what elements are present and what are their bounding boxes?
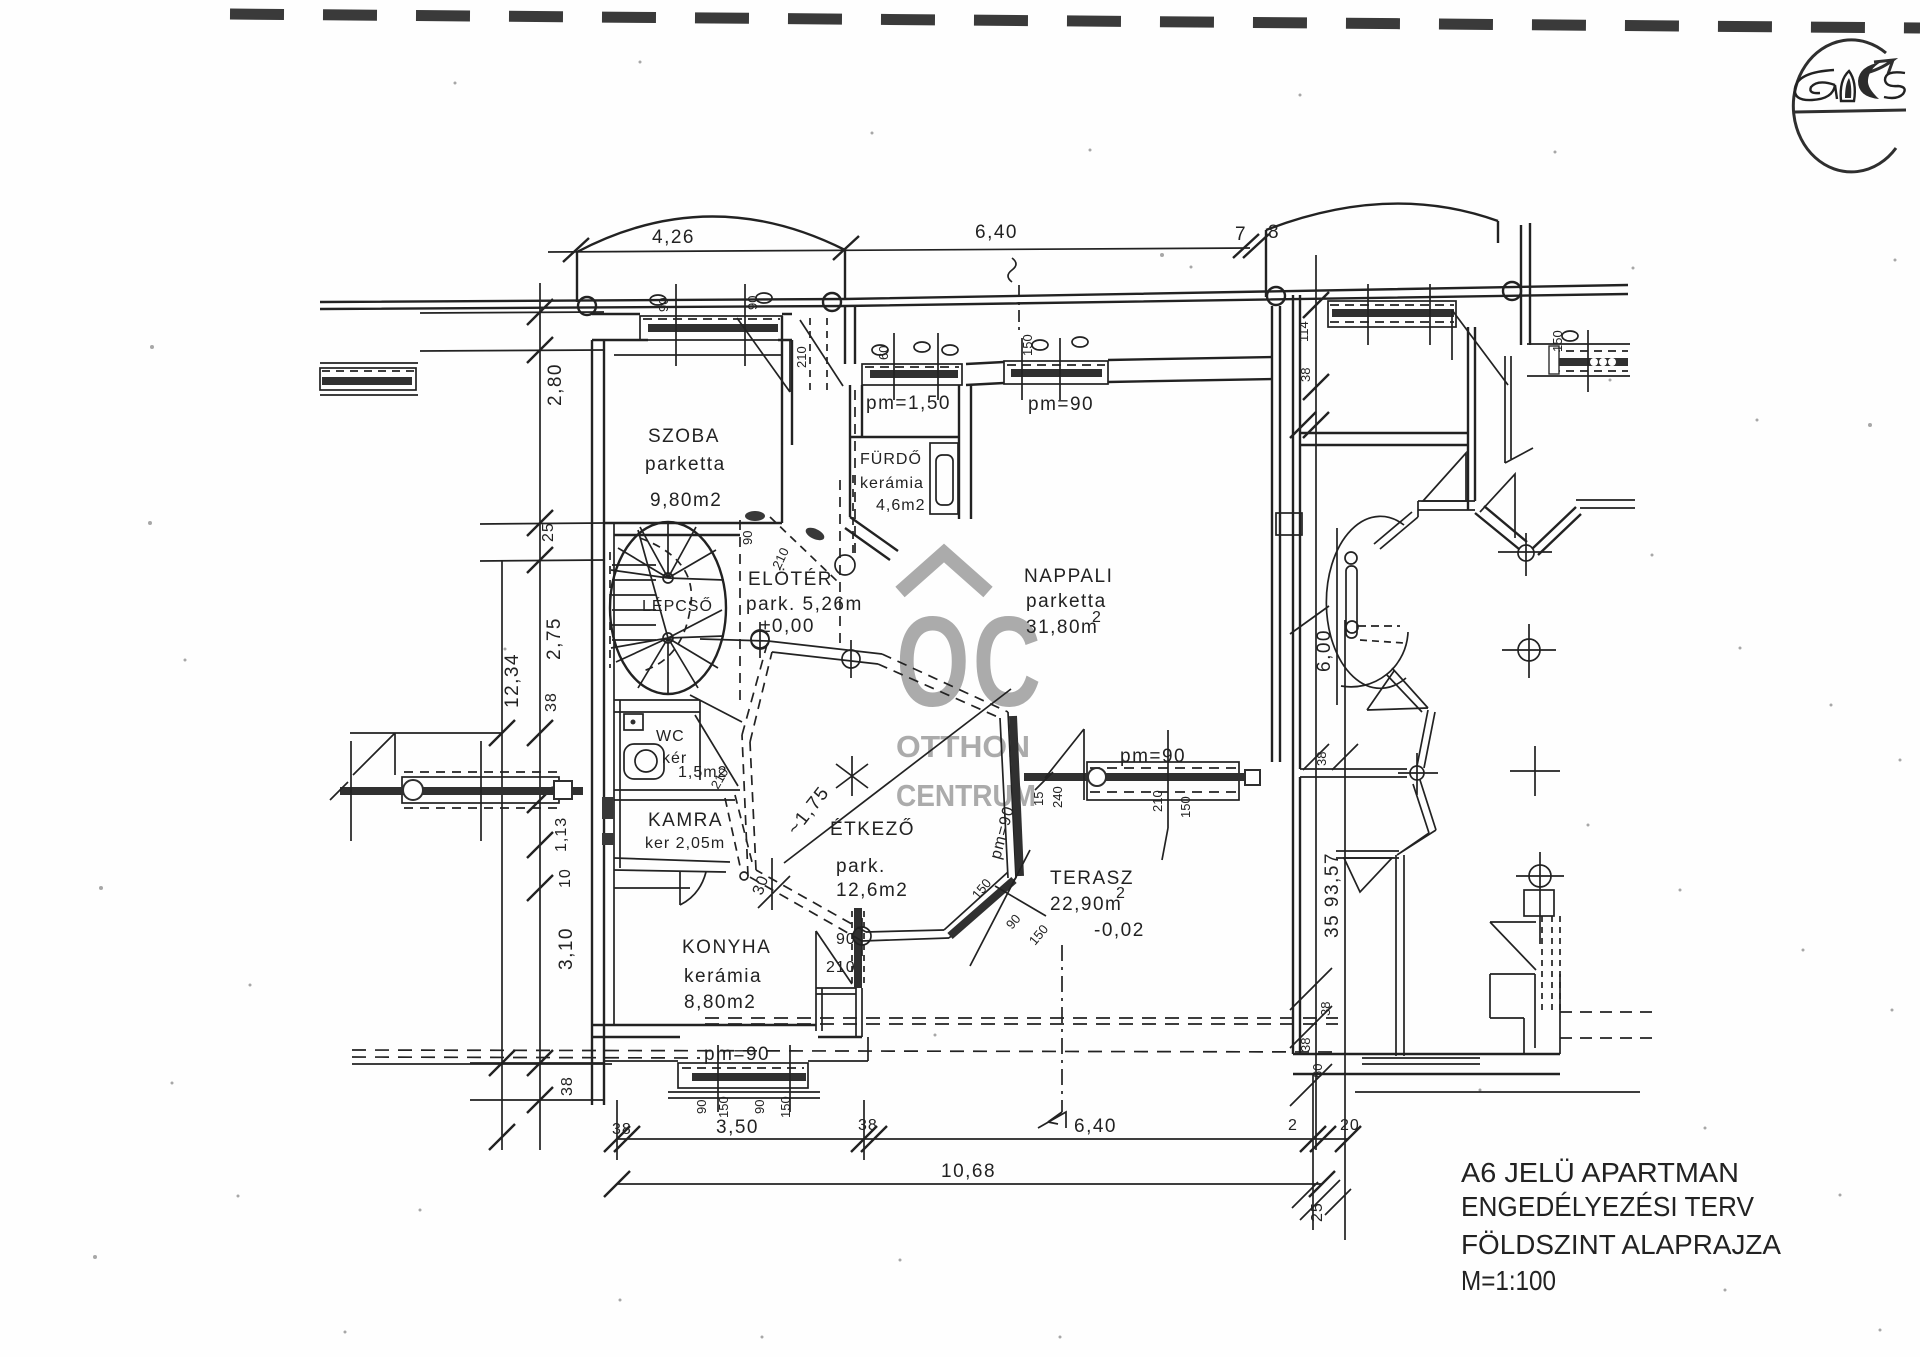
svg-text:A6 JELÜ APARTMAN: A6 JELÜ APARTMAN xyxy=(1461,1157,1739,1188)
svg-text:22,90m: 22,90m xyxy=(1050,894,1122,915)
svg-text:25: 25 xyxy=(540,522,557,542)
svg-text:150: 150 xyxy=(778,1096,793,1118)
svg-text:210: 210 xyxy=(1150,790,1165,812)
svg-text:ELÖTÉR: ELÖTÉR xyxy=(748,569,833,590)
svg-text:KAMRA: KAMRA xyxy=(648,810,723,831)
svg-text:park. 5,26m: park. 5,26m xyxy=(746,594,863,615)
svg-text:12,34: 12,34 xyxy=(502,653,523,708)
svg-text:60: 60 xyxy=(1310,1064,1325,1078)
svg-text:2: 2 xyxy=(1288,1117,1298,1134)
svg-text:15: 15 xyxy=(1031,792,1046,806)
svg-text:6,40: 6,40 xyxy=(975,222,1018,243)
svg-text:7: 7 xyxy=(1235,224,1247,245)
svg-text:240: 240 xyxy=(1050,786,1065,808)
svg-text:-0,02: -0,02 xyxy=(1094,920,1145,941)
svg-text:10,68: 10,68 xyxy=(941,1161,996,1182)
svg-text:210: 210 xyxy=(794,346,809,368)
svg-text:38: 38 xyxy=(612,1121,632,1138)
svg-text:OC: OC xyxy=(896,590,1044,733)
svg-text:90: 90 xyxy=(752,1100,767,1114)
svg-text:150: 150 xyxy=(1178,796,1193,818)
svg-text:NAPPALI: NAPPALI xyxy=(1024,566,1113,587)
svg-text:ker 2,05m: ker 2,05m xyxy=(645,835,725,852)
svg-text:25: 25 xyxy=(1309,1202,1326,1222)
svg-text:2: 2 xyxy=(1092,609,1102,626)
svg-text:38: 38 xyxy=(559,1076,576,1096)
svg-text:150: 150 xyxy=(716,1096,731,1118)
svg-text:38: 38 xyxy=(1298,368,1313,382)
svg-text:parketta: parketta xyxy=(645,454,726,475)
svg-text:pm=90: pm=90 xyxy=(1028,394,1094,415)
svg-text:FÜRDŐ: FÜRDŐ xyxy=(860,449,922,468)
svg-text:150: 150 xyxy=(1550,330,1565,352)
svg-text:90: 90 xyxy=(694,1100,709,1114)
svg-text:KONYHA: KONYHA xyxy=(682,937,771,958)
svg-text:3,50: 3,50 xyxy=(716,1117,759,1138)
svg-text:kerámia: kerámia xyxy=(860,475,924,492)
svg-text:38: 38 xyxy=(543,692,560,712)
svg-text:ÉTKEZŐ: ÉTKEZŐ xyxy=(830,818,915,840)
svg-text:pm=90: pm=90 xyxy=(704,1044,770,1065)
svg-text:6,00: 6,00 xyxy=(1314,629,1335,672)
svg-text:38: 38 xyxy=(1318,1002,1333,1016)
svg-text:60: 60 xyxy=(876,346,891,360)
svg-text:6,40: 6,40 xyxy=(1074,1116,1117,1137)
svg-text:35 93,57: 35 93,57 xyxy=(1322,852,1343,938)
svg-text:FÖLDSZINT ALAPRAJZA: FÖLDSZINT ALAPRAJZA xyxy=(1461,1229,1781,1260)
svg-text:1,13: 1,13 xyxy=(553,817,570,852)
svg-text:150: 150 xyxy=(1020,334,1035,356)
svg-text:38: 38 xyxy=(858,1117,878,1134)
svg-text:M=1:100: M=1:100 xyxy=(1461,1265,1556,1296)
svg-text:pm=90: pm=90 xyxy=(1120,746,1186,767)
svg-text:SZOBA: SZOBA xyxy=(648,426,720,447)
svg-text:10: 10 xyxy=(557,868,574,888)
svg-text:38: 38 xyxy=(1314,752,1329,766)
svg-text:park.: park. xyxy=(836,856,886,877)
svg-text:20: 20 xyxy=(1340,1117,1360,1134)
svg-text:8,80m2: 8,80m2 xyxy=(684,992,756,1013)
svg-text:31,80m: 31,80m xyxy=(1026,617,1098,638)
svg-text:WC: WC xyxy=(656,728,685,745)
svg-text:ENGEDÉLYEZÉSI TERV: ENGEDÉLYEZÉSI TERV xyxy=(1461,1191,1754,1222)
svg-text:LÉPCSŐ: LÉPCSŐ xyxy=(642,596,713,615)
svg-text:12,6m2: 12,6m2 xyxy=(836,880,908,901)
svg-text:90: 90 xyxy=(740,531,755,545)
svg-text:pm=1,50: pm=1,50 xyxy=(866,393,951,414)
svg-text:2,75: 2,75 xyxy=(544,617,565,660)
svg-text:3,10: 3,10 xyxy=(556,927,577,970)
svg-text:210: 210 xyxy=(826,959,856,976)
svg-text:38: 38 xyxy=(1298,1038,1313,1052)
svg-text:9,80m2: 9,80m2 xyxy=(650,490,722,511)
svg-text:4,26: 4,26 xyxy=(652,227,695,248)
svg-text:114: 114 xyxy=(1296,321,1311,342)
svg-text:kerámia: kerámia xyxy=(684,966,762,987)
svg-text:4,6m2: 4,6m2 xyxy=(876,497,925,514)
svg-text:2: 2 xyxy=(1116,885,1126,902)
svg-text:2,80: 2,80 xyxy=(545,363,566,406)
svg-text:90: 90 xyxy=(745,296,760,310)
